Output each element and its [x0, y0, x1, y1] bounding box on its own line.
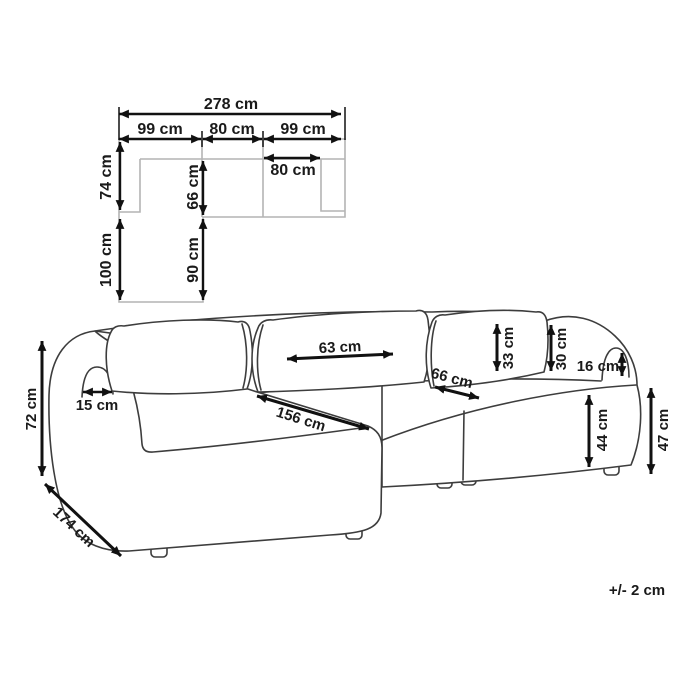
plan-label-chaise-front-depth: 100 cm: [98, 233, 115, 287]
tolerance-note: +/- 2 cm: [609, 582, 665, 599]
plan-left-armrest-inner-edge: [119, 159, 140, 212]
front-module-seam: [463, 411, 464, 480]
sofa-label-back-cushion-width: 63 cm: [318, 338, 361, 357]
plan-label-back-depth: 74 cm: [98, 154, 115, 199]
plan-label-total-width: 278 cm: [204, 96, 258, 113]
diagram-svg: 278 cm 99 cm 80 cm 99 cm 80 cm 74 cm 100…: [0, 0, 700, 700]
sofa-illustration: 72 cm 174 cm 15 cm 63 cm 156 cm 66 cm 33…: [23, 310, 672, 557]
top-view-plan: 278 cm 99 cm 80 cm 99 cm 80 cm 74 cm 100…: [98, 96, 345, 302]
sofa-label-armrest-above-backrest: 16 cm: [577, 358, 620, 375]
plan-label-module-middle: 80 cm: [209, 121, 254, 138]
sofa-label-backrest-height: 30 cm: [553, 328, 570, 371]
plan-dimension-labels: 278 cm 99 cm 80 cm 99 cm 80 cm 74 cm 100…: [98, 96, 326, 287]
plan-label-module-left: 99 cm: [137, 121, 182, 138]
sofa-dimension-diagram: 278 cm 99 cm 80 cm 99 cm 80 cm 74 cm 100…: [0, 0, 700, 700]
plan-label-right-seat-width: 80 cm: [270, 162, 315, 179]
plan-label-seat-depth: 66 cm: [185, 164, 202, 209]
plan-right-armrest-inner-edge: [321, 159, 345, 211]
sofa-label-seat-height: 44 cm: [594, 409, 611, 452]
plan-label-module-right: 99 cm: [280, 121, 325, 138]
back-cushion-left: [106, 320, 252, 394]
plan-dimension-arrows: [119, 114, 341, 300]
plan-label-chaise-extension: 90 cm: [185, 237, 202, 282]
sofa-label-overall-height: 72 cm: [23, 388, 40, 431]
sofa-label-armrest-width: 15 cm: [76, 397, 119, 414]
sofa-label-back-cushion-height: 33 cm: [500, 327, 517, 370]
sofa-label-armrest-height: 47 cm: [655, 409, 672, 452]
